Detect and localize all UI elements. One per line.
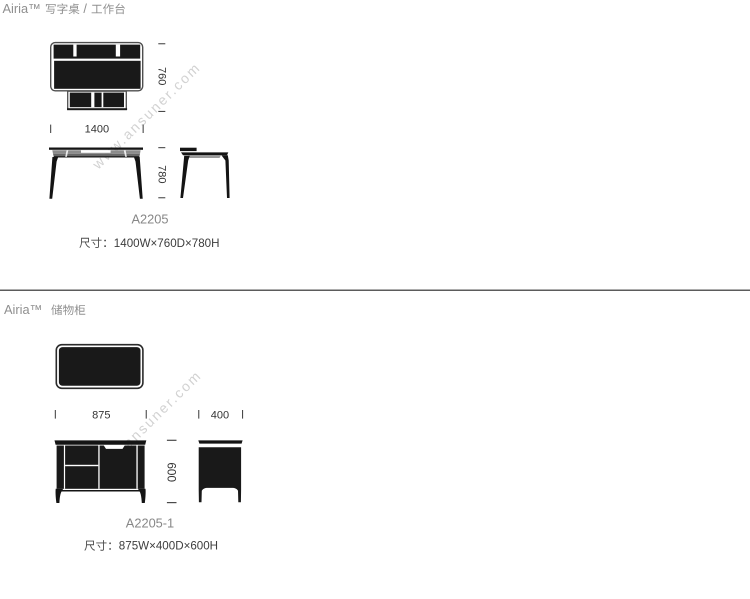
svg-text:400: 400 [211,410,229,422]
svg-text:760: 760 [156,67,168,85]
svg-text:1400W×760D×780H: 1400W×760D×780H [114,237,220,250]
svg-text:/: / [83,1,87,16]
svg-text:875: 875 [92,410,110,422]
svg-text:780: 780 [155,165,167,183]
svg-text:A2205-1: A2205-1 [126,516,174,531]
svg-text:875W×400D×600H: 875W×400D×600H [119,540,218,553]
svg-text:Airia™: Airia™ [3,1,41,16]
svg-text:Airia™: Airia™ [4,302,42,317]
svg-text:A2205: A2205 [131,212,168,227]
svg-text:1400: 1400 [85,124,109,136]
svg-text:600: 600 [165,462,179,482]
